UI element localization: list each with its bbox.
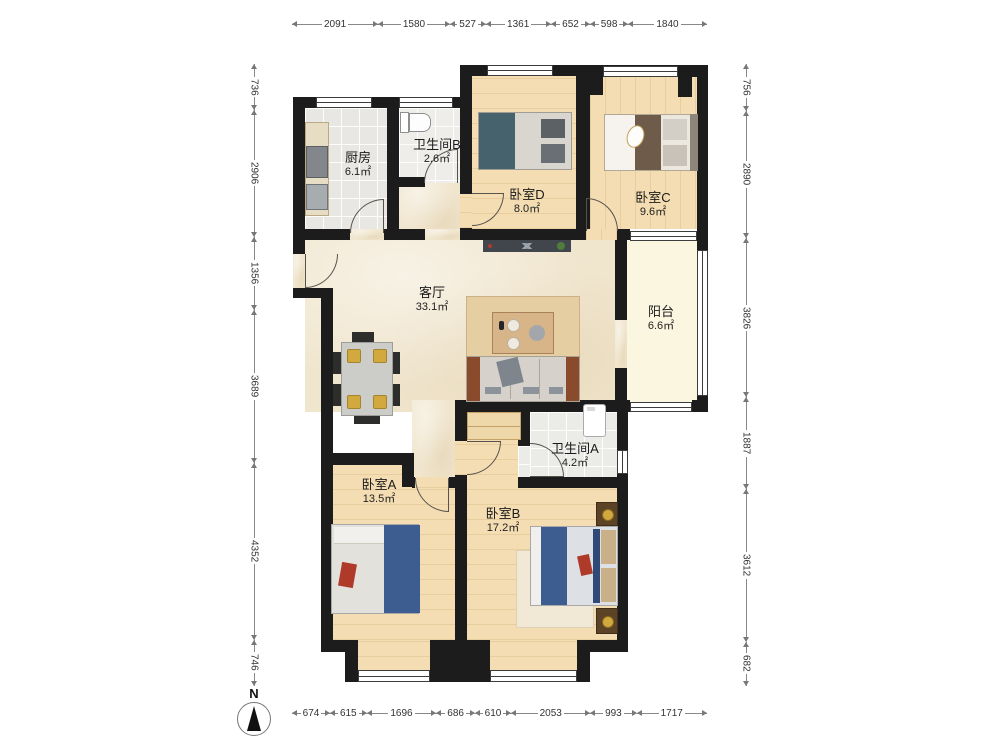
dimension-segment: 1361 (486, 17, 551, 31)
dimension-segment: 756 (739, 64, 753, 111)
room-label-balcony: 阳台6.6㎡ (648, 304, 674, 334)
coffee-table (492, 312, 554, 354)
dimension-segment: 1696 (367, 706, 437, 720)
toilet-b-bowl (409, 113, 431, 132)
wall (518, 477, 628, 488)
tv-decor-red (488, 244, 492, 248)
bed-a-blanket (384, 525, 420, 613)
balcony-side-window (697, 250, 708, 396)
sofa-side-table (566, 357, 579, 401)
bed-b-red-accent (577, 554, 593, 576)
bed-d-pillow (541, 144, 565, 163)
compass-needle-icon (247, 706, 261, 731)
bed-a-red-accent (338, 562, 357, 588)
place-setting (373, 349, 387, 363)
dimension-segment: 682 (739, 642, 753, 686)
tv-stand (483, 240, 571, 252)
dimension-segment: 1717 (637, 706, 707, 720)
bed-d-blanket (479, 113, 515, 169)
nightstand (596, 502, 618, 526)
bathroom-a-window (617, 450, 628, 474)
room-label-kitchen: 厨房6.1㎡ (345, 150, 371, 180)
dimension-segment: 4352 (247, 463, 261, 639)
wall (678, 65, 692, 97)
dimension-segment: 1887 (739, 397, 753, 489)
dining-chair (352, 332, 374, 342)
bed-c (604, 114, 697, 171)
dimension-segment: 2053 (511, 706, 590, 720)
sofa-pillow (523, 387, 539, 394)
sink (306, 184, 328, 210)
bed-b-sheet (531, 527, 541, 605)
nightstand (596, 608, 618, 634)
room-label-living: 客厅33.1㎡ (416, 285, 448, 315)
bedroom-b-bay-floor (490, 640, 577, 672)
compass-circle (237, 702, 271, 736)
wardrobe-b (467, 412, 521, 440)
wall (430, 640, 443, 682)
kitchen-window (316, 97, 372, 108)
plate-decor (507, 319, 520, 332)
dimension-segment: 615 (330, 706, 367, 720)
place-setting (373, 395, 387, 409)
sofa-pillow (485, 387, 501, 394)
washer (583, 404, 606, 437)
bedroom-d-window (487, 65, 553, 76)
bed-b (530, 526, 618, 606)
hall-opening (425, 229, 460, 240)
dimension-segment: 736 (247, 64, 261, 110)
balcony-top-window (630, 231, 697, 241)
sofa-throw (496, 357, 524, 388)
dimension-segment: 993 (590, 706, 636, 720)
room-label-bedroom-b: 卧室B17.2㎡ (486, 506, 521, 536)
dimension-chain-top: 2091158052713616525981840 (292, 17, 707, 31)
plate-decor (507, 337, 520, 350)
toilet-b (400, 112, 409, 133)
dimension-chain-bottom: 674615169668661020539931717 (292, 706, 707, 720)
tv-screen (513, 243, 541, 249)
dining-set (328, 332, 404, 424)
room-label-bedroom-d: 卧室D8.0㎡ (509, 187, 544, 217)
bed-b-blanket (541, 527, 567, 605)
bottle-decor (499, 321, 504, 330)
dimension-segment: 1580 (378, 17, 450, 31)
dimension-chain-left: 7362906135636894352746 (247, 64, 261, 686)
bathroom-a-door-opening (518, 446, 530, 477)
wall (399, 229, 425, 240)
dimension-segment: 2906 (247, 110, 261, 237)
wall (387, 97, 399, 240)
bedroom-b-bay-window (490, 670, 577, 682)
bed-c-pillow (663, 145, 687, 166)
bed-d-pillow (541, 119, 565, 138)
place-setting (347, 349, 361, 363)
dimension-segment: 652 (551, 17, 590, 31)
room-label-bedroom-c: 卧室C9.6㎡ (635, 190, 670, 220)
sofa (466, 356, 580, 402)
compass-north-label: N (236, 686, 272, 701)
bedroom-a-bay-floor (358, 640, 430, 672)
wall (617, 412, 628, 652)
dimension-segment: 686 (436, 706, 474, 720)
wardrobe-line (468, 426, 520, 427)
bed-b-pillow (601, 530, 616, 564)
wall (399, 177, 425, 187)
plant-decor (529, 325, 545, 341)
compass: N (236, 686, 272, 736)
bed-b-runner (593, 529, 600, 603)
balcony-opening (615, 320, 627, 368)
bedroom-d-door-opening (460, 194, 472, 228)
bed-b-pillow (601, 568, 616, 602)
dimension-segment: 2890 (739, 111, 753, 238)
bed-c-headboard (690, 114, 698, 171)
dimension-segment: 746 (247, 640, 261, 686)
room-label-bathroom-b: 卫生间B2.6㎡ (413, 137, 461, 167)
room-label-bathroom-a: 卫生间A4.2㎡ (551, 441, 599, 471)
hallway-floor-south (412, 400, 455, 478)
sofa-cushion-line (539, 359, 540, 399)
stove (306, 146, 328, 178)
bedroom-b-door-opening (455, 441, 467, 475)
bed-d (478, 112, 572, 170)
bedroom-a-bay-window (358, 670, 430, 682)
wall (577, 640, 628, 652)
balcony-bottom-window (630, 402, 692, 412)
lamp-icon (602, 509, 614, 521)
dimension-segment: 610 (475, 706, 511, 720)
dimension-segment: 674 (292, 706, 330, 720)
bedroom-c-window (603, 66, 678, 77)
place-setting (347, 395, 361, 409)
dimension-segment: 1356 (247, 237, 261, 310)
sofa-side-table (467, 357, 480, 401)
dimension-segment: 3826 (739, 238, 753, 398)
wall (590, 65, 603, 95)
washer-panel (587, 407, 595, 411)
dimension-chain-right: 7562890382618873612682 (739, 64, 753, 686)
plant-icon (557, 242, 565, 250)
bathroom-b-window (399, 97, 453, 108)
dimension-segment: 3689 (247, 310, 261, 464)
room-label-bedroom-a: 卧室A13.5㎡ (362, 477, 397, 507)
dimension-segment: 1840 (628, 17, 707, 31)
wall (321, 453, 412, 465)
floor-plan: 厨房6.1㎡ 卫生间B2.6㎡ 卧室D8.0㎡ 卧室C9.6㎡ 客厅33.1㎡ … (0, 0, 1000, 750)
dimension-segment: 2091 (292, 17, 378, 31)
wall (697, 65, 708, 247)
entry-door-opening (293, 254, 305, 288)
dimension-segment: 3612 (739, 489, 753, 641)
sofa-pillow (549, 387, 563, 394)
dimension-segment: 527 (450, 17, 486, 31)
bed-a (331, 524, 419, 614)
bed-c-pillow (663, 119, 687, 140)
lamp-icon (602, 616, 614, 628)
dimension-segment: 598 (590, 17, 628, 31)
